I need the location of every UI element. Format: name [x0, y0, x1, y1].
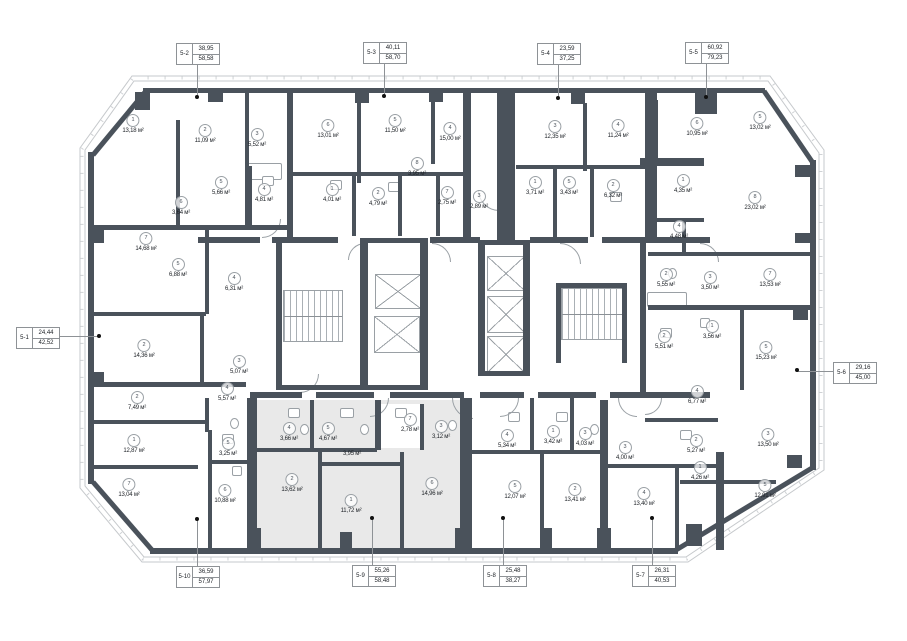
leader-line: [384, 62, 385, 96]
unit-area-bottom: 58,58: [193, 55, 219, 65]
unit-area-bottom: 40,53: [649, 577, 675, 587]
unit-area-top: 55,26: [369, 566, 395, 577]
unit-label-5-5[interactable]: 5-560,9279,23: [685, 42, 729, 64]
unit-id: 5-9: [353, 566, 369, 586]
unit-labels-layer: 5-124,4442,525-238,9558,585-340,1158,705…: [0, 0, 907, 641]
unit-area-bottom: 58,70: [380, 54, 406, 64]
unit-area-bottom: 57,97: [193, 578, 219, 588]
leader-dot: [370, 516, 374, 520]
unit-label-5-7[interactable]: 5-726,3140,53: [632, 565, 676, 587]
unit-label-5-8[interactable]: 5-825,4838,27: [483, 565, 527, 587]
unit-area-top: 24,44: [33, 328, 59, 339]
leader-line: [558, 63, 559, 98]
unit-id: 5-3: [364, 43, 380, 63]
unit-area-bottom: 42,52: [33, 339, 59, 349]
unit-area-top: 60,92: [702, 43, 728, 54]
unit-area-bottom: 37,25: [554, 55, 580, 65]
unit-id: 5-7: [633, 566, 649, 586]
unit-label-5-9[interactable]: 5-955,2658,48: [352, 565, 396, 587]
unit-area-bottom: 38,27: [500, 577, 526, 587]
unit-area-top: 40,11: [380, 43, 406, 54]
leader-line: [652, 518, 653, 565]
unit-label-5-6[interactable]: 5-629,1645,00: [833, 362, 877, 384]
unit-area-top: 29,16: [850, 363, 876, 374]
leader-dot: [195, 517, 199, 521]
leader-dot: [650, 516, 654, 520]
unit-area-top: 25,48: [500, 566, 526, 577]
unit-area-bottom: 45,00: [850, 374, 876, 384]
unit-label-5-4[interactable]: 5-423,5937,25: [537, 43, 581, 65]
unit-area-top: 38,95: [193, 44, 219, 55]
unit-area-bottom: 58,48: [369, 577, 395, 587]
unit-label-5-1[interactable]: 5-124,4442,52: [16, 327, 60, 349]
unit-id: 5-5: [686, 43, 702, 63]
unit-id: 5-1: [17, 328, 33, 348]
leader-dot: [795, 368, 799, 372]
unit-label-5-3[interactable]: 5-340,1158,70: [363, 42, 407, 64]
unit-id: 5-2: [177, 44, 193, 64]
leader-line: [197, 63, 198, 97]
floor-plan: 113,18 м²211,09 м²35,52 м²55,66 м²44,81 …: [0, 0, 907, 641]
leader-dot: [704, 95, 708, 99]
unit-label-5-10[interactable]: 5-1036,5957,97: [176, 566, 220, 588]
unit-area-top: 23,59: [554, 44, 580, 55]
leader-dot: [382, 94, 386, 98]
leader-line: [58, 336, 99, 337]
leader-line: [197, 519, 198, 566]
leader-dot: [501, 516, 505, 520]
unit-area-top: 26,31: [649, 566, 675, 577]
leader-line: [797, 371, 833, 372]
unit-id: 5-4: [538, 44, 554, 64]
leader-line: [372, 518, 373, 565]
unit-area-bottom: 79,23: [702, 54, 728, 64]
leader-dot: [556, 96, 560, 100]
unit-id: 5-6: [834, 363, 850, 383]
leader-dot: [97, 334, 101, 338]
unit-id: 5-8: [484, 566, 500, 586]
leader-line: [706, 62, 707, 97]
unit-area-top: 36,59: [193, 567, 219, 578]
leader-line: [503, 518, 504, 565]
unit-label-5-2[interactable]: 5-238,9558,58: [176, 43, 220, 65]
unit-id: 5-10: [177, 567, 193, 587]
leader-dot: [195, 95, 199, 99]
